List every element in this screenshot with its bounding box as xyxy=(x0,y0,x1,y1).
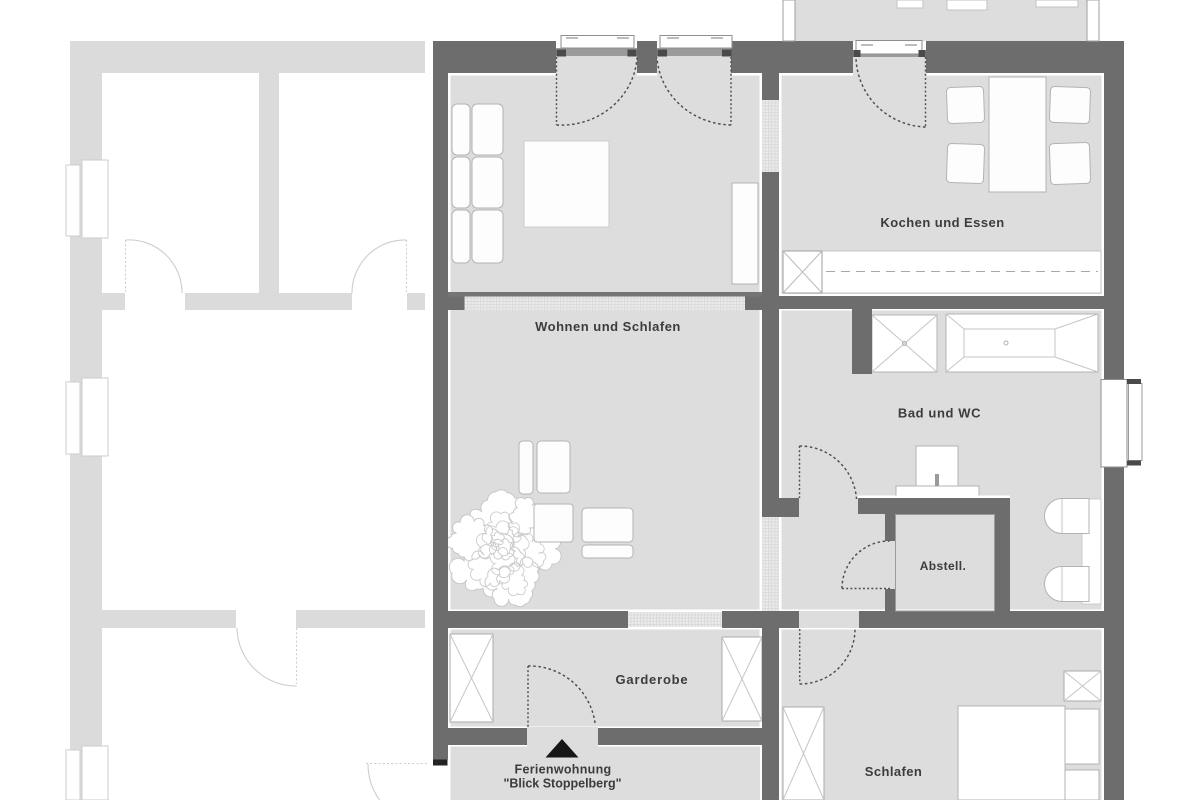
svg-text:Ferienwohnung: Ferienwohnung xyxy=(515,763,612,777)
svg-text:Garderobe: Garderobe xyxy=(616,672,689,687)
svg-text:Abstell.: Abstell. xyxy=(920,559,967,573)
svg-text:Schlafen: Schlafen xyxy=(865,764,922,779)
svg-text:"Blick Stoppelberg": "Blick Stoppelberg" xyxy=(503,777,621,791)
svg-text:Kochen und Essen: Kochen und Essen xyxy=(880,215,1004,230)
svg-text:Bad und WC: Bad und WC xyxy=(898,406,981,421)
svg-text:Wohnen und Schlafen: Wohnen und Schlafen xyxy=(535,319,681,334)
